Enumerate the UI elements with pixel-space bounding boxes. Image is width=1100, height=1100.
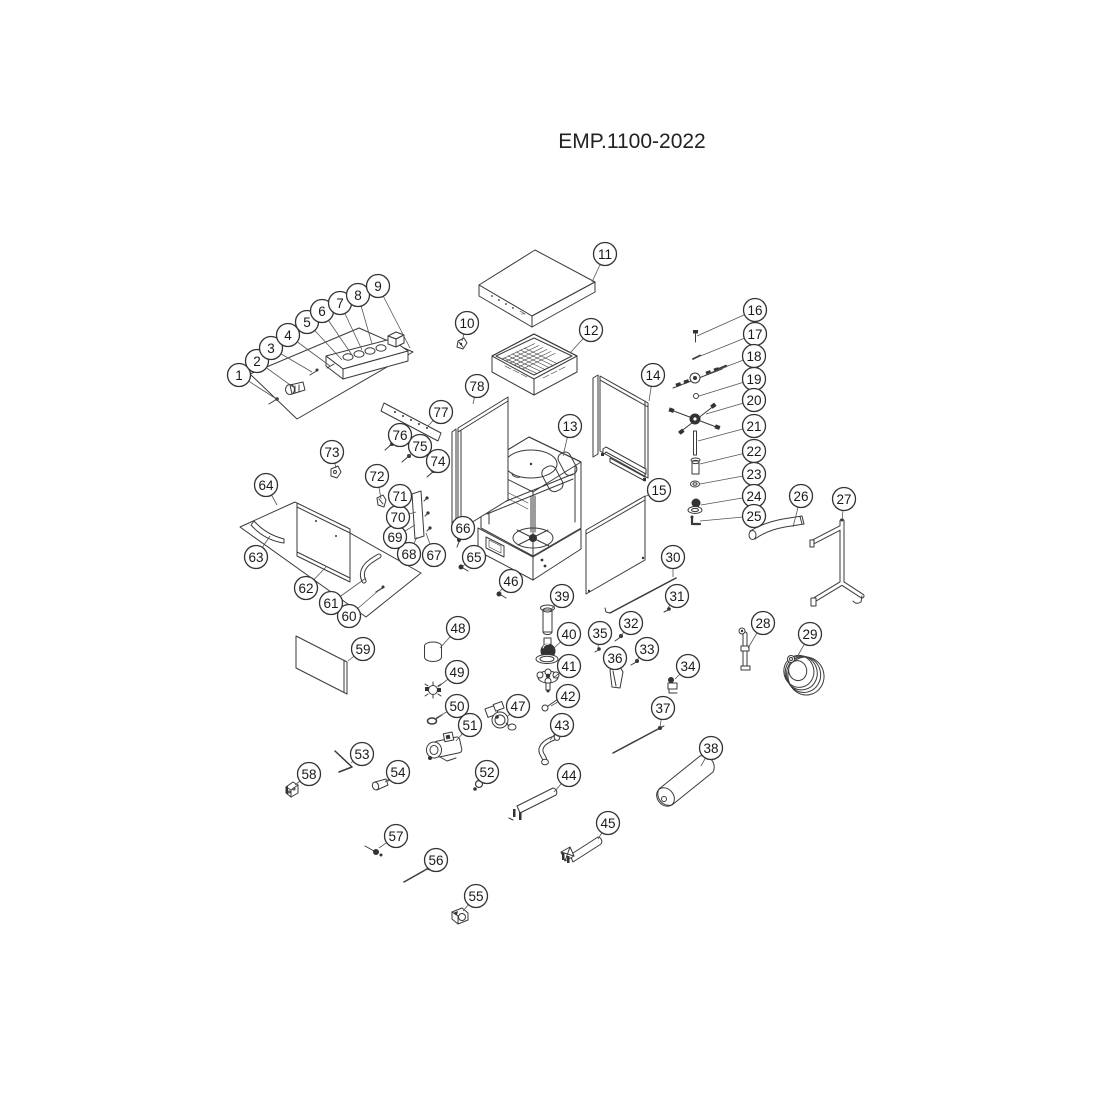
callout-50: 50: [436, 695, 469, 719]
callout-number-23: 23: [746, 467, 761, 482]
part-elbow-25: [691, 516, 701, 525]
part-hinge-strip: [412, 491, 432, 539]
callout-21: 21: [698, 415, 766, 442]
part-heating-element-45: [561, 837, 602, 863]
callout-number-15: 15: [651, 483, 666, 498]
callout-14: 14: [642, 364, 665, 402]
part-boiler-cylinder: [653, 756, 714, 810]
callout-29: 29: [796, 623, 822, 660]
callout-number-66: 66: [455, 521, 470, 536]
callout-number-46: 46: [503, 574, 518, 589]
callout-number-22: 22: [746, 444, 761, 459]
callout-number-32: 32: [623, 616, 638, 631]
callout-number-29: 29: [802, 627, 817, 642]
callout-40: 40: [553, 623, 581, 650]
part-panel-59: [296, 636, 347, 694]
part-standpipe-39: [541, 605, 555, 635]
callout-number-60: 60: [341, 609, 356, 624]
callout-63: 63: [245, 536, 271, 569]
diagram-canvas: EMP.1100-2022: [0, 0, 1100, 1100]
callout-37: 37: [652, 697, 675, 728]
part-screw-33: [631, 659, 639, 665]
callout-66: 66: [452, 517, 475, 541]
callout-67: 67: [423, 533, 446, 567]
part-pump-motor-51: [427, 732, 463, 761]
callout-number-48: 48: [450, 621, 465, 636]
callout-44: 44: [554, 764, 581, 793]
callout-28: 28: [748, 612, 775, 649]
callout-number-74: 74: [430, 454, 446, 469]
part-hose-61: [362, 556, 379, 581]
callout-number-35: 35: [592, 626, 607, 641]
callout-12: 12: [570, 319, 603, 354]
callout-72: 72: [366, 465, 389, 500]
callout-13: 13: [559, 415, 582, 457]
part-coiled-hose: [781, 651, 828, 699]
part-impeller-41: [537, 669, 559, 693]
callout-number-73: 73: [324, 445, 339, 460]
callout-36: 36: [604, 647, 627, 671]
callout-number-14: 14: [645, 368, 661, 383]
callout-number-33: 33: [639, 642, 654, 657]
callout-number-6: 6: [318, 304, 326, 319]
callout-77: 77: [428, 401, 453, 427]
part-rod-56: [404, 869, 430, 882]
callout-number-55: 55: [468, 889, 483, 904]
callout-number-10: 10: [459, 316, 474, 331]
part-pin-60: [376, 586, 385, 593]
callout-32: 32: [620, 612, 643, 638]
callout-64: 64: [255, 474, 278, 506]
callout-56: 56: [424, 849, 448, 872]
part-fitting-24: [688, 499, 702, 514]
callout-number-41: 41: [561, 659, 576, 674]
callout-number-71: 71: [392, 489, 407, 504]
callout-number-40: 40: [561, 627, 576, 642]
part-valve-34: [668, 677, 677, 693]
part-bolt-46: [497, 592, 507, 599]
callout-11: 11: [592, 243, 617, 283]
part-riser-pipe-21: [694, 431, 697, 455]
callout-number-26: 26: [793, 489, 808, 504]
callout-number-16: 16: [747, 303, 762, 318]
part-stand-frame: [810, 519, 862, 607]
callout-number-36: 36: [607, 651, 622, 666]
callout-number-59: 59: [355, 642, 370, 657]
callout-number-53: 53: [354, 747, 369, 762]
callout-number-27: 27: [836, 492, 851, 507]
callout-73: 73: [321, 441, 344, 469]
callout-number-69: 69: [387, 530, 402, 545]
callout-number-17: 17: [747, 327, 762, 342]
callout-number-47: 47: [510, 699, 525, 714]
callout-39: 39: [550, 585, 574, 612]
callout-number-76: 76: [392, 428, 407, 443]
part-bent-rod-53: [335, 751, 352, 772]
callout-65: 65: [463, 546, 486, 569]
callout-number-13: 13: [562, 419, 577, 434]
callout-15: 15: [644, 479, 671, 502]
exploded-parts-diagram: EMP.1100-2022: [0, 0, 1100, 1100]
callout-number-19: 19: [746, 372, 761, 387]
callout-33: 33: [636, 638, 659, 662]
part-heating-element-44: [509, 788, 557, 820]
callout-number-70: 70: [390, 510, 405, 525]
callout-70: 70: [387, 506, 417, 529]
callout-27: 27: [833, 488, 856, 522]
callout-number-3: 3: [267, 341, 275, 356]
part-clip-72: [377, 495, 386, 507]
part-top-cover: [479, 250, 595, 327]
callout-number-62: 62: [298, 581, 313, 596]
callout-number-12: 12: [583, 323, 598, 338]
callout-number-20: 20: [746, 393, 761, 408]
callout-43: 43: [550, 714, 574, 741]
callout-59: 59: [348, 638, 375, 662]
part-cup-48: [425, 642, 442, 662]
callout-35: 35: [589, 622, 612, 649]
callout-number-77: 77: [433, 405, 448, 420]
callout-number-44: 44: [561, 768, 577, 783]
callout-71: 71: [389, 485, 414, 508]
part-dish-basket: [492, 334, 577, 395]
callout-76: 76: [389, 424, 412, 447]
part-side-panel-right: [586, 496, 645, 594]
callout-42: 42: [551, 685, 580, 708]
callout-number-37: 37: [655, 701, 670, 716]
part-hose-43: [541, 734, 560, 765]
callout-10: 10: [456, 312, 479, 342]
callout-number-63: 63: [248, 550, 263, 565]
callout-31: 31: [666, 585, 689, 610]
callout-46: 46: [499, 570, 523, 593]
callout-number-72: 72: [369, 469, 384, 484]
callout-number-61: 61: [323, 596, 338, 611]
callout-number-45: 45: [600, 816, 615, 831]
part-rod-37: [613, 726, 664, 753]
callout-number-75: 75: [412, 439, 427, 454]
callout-number-58: 58: [301, 767, 316, 782]
callout-53: 53: [351, 743, 374, 766]
part-spray-arm-upper: [673, 366, 726, 388]
callout-number-67: 67: [426, 548, 441, 563]
diagram-title: EMP.1100-2022: [558, 130, 706, 153]
callout-48: 48: [440, 617, 470, 649]
callout-number-42: 42: [560, 689, 575, 704]
callout-49: 49: [438, 661, 469, 688]
callout-58: 58: [295, 763, 321, 786]
callout-45: 45: [597, 812, 620, 840]
callout-62: 62: [295, 567, 327, 600]
part-seal-flange-40: [536, 638, 558, 664]
callout-57: 57: [379, 825, 408, 849]
part-ball-19: [694, 394, 699, 399]
callout-60: 60: [338, 591, 379, 628]
callout-55: 55: [463, 885, 488, 912]
callout-22: 22: [700, 440, 766, 465]
callout-number-24: 24: [746, 489, 762, 504]
callout-number-39: 39: [554, 589, 569, 604]
callout-number-2: 2: [253, 354, 261, 369]
callout-number-64: 64: [258, 478, 274, 493]
callout-30: 30: [662, 546, 685, 578]
part-spray-arm-lower: [668, 403, 720, 435]
callout-number-11: 11: [598, 247, 612, 262]
callout-number-56: 56: [428, 853, 443, 868]
callout-number-4: 4: [284, 328, 292, 343]
part-foot-55: [452, 908, 468, 924]
callout-number-50: 50: [449, 699, 464, 714]
callout-number-1: 1: [235, 368, 243, 383]
part-overflow-pipe: [739, 628, 750, 670]
part-micro-motor-49: [425, 682, 441, 698]
callout-52: 52: [476, 761, 499, 784]
callout-number-43: 43: [554, 718, 569, 733]
callout-number-51: 51: [462, 718, 477, 733]
callout-number-25: 25: [746, 509, 761, 524]
callout-number-49: 49: [449, 665, 464, 680]
callout-number-54: 54: [390, 765, 406, 780]
callout-number-68: 68: [401, 547, 416, 562]
part-wire-clip-42: [542, 699, 558, 711]
callout-number-8: 8: [354, 288, 362, 303]
callout-20: 20: [706, 389, 766, 415]
callout-number-65: 65: [466, 550, 481, 565]
part-pin-17: [693, 356, 700, 360]
callout-47: 47: [507, 695, 530, 718]
callout-number-5: 5: [303, 315, 311, 330]
callout-number-34: 34: [680, 659, 696, 674]
part-sleeve-22: [691, 458, 700, 474]
callout-34: 34: [675, 655, 700, 680]
callout-78: 78: [466, 375, 489, 405]
callout-number-28: 28: [755, 616, 770, 631]
callout-number-7: 7: [336, 296, 344, 311]
callout-number-30: 30: [665, 550, 680, 565]
part-nut-23: [691, 481, 700, 487]
part-screw-1: [269, 397, 279, 404]
callout-25: 25: [700, 505, 766, 528]
callout-number-9: 9: [374, 279, 382, 294]
callout-23: 23: [700, 463, 766, 486]
callout-number-38: 38: [703, 741, 718, 756]
callout-number-52: 52: [479, 765, 494, 780]
part-door-panel-right: [593, 375, 648, 481]
callout-number-57: 57: [388, 829, 403, 844]
callout-number-78: 78: [469, 379, 484, 394]
part-oring-50: [428, 715, 443, 724]
callout-number-31: 31: [669, 589, 684, 604]
callout-number-18: 18: [746, 349, 761, 364]
callout-number-21: 21: [746, 419, 761, 434]
